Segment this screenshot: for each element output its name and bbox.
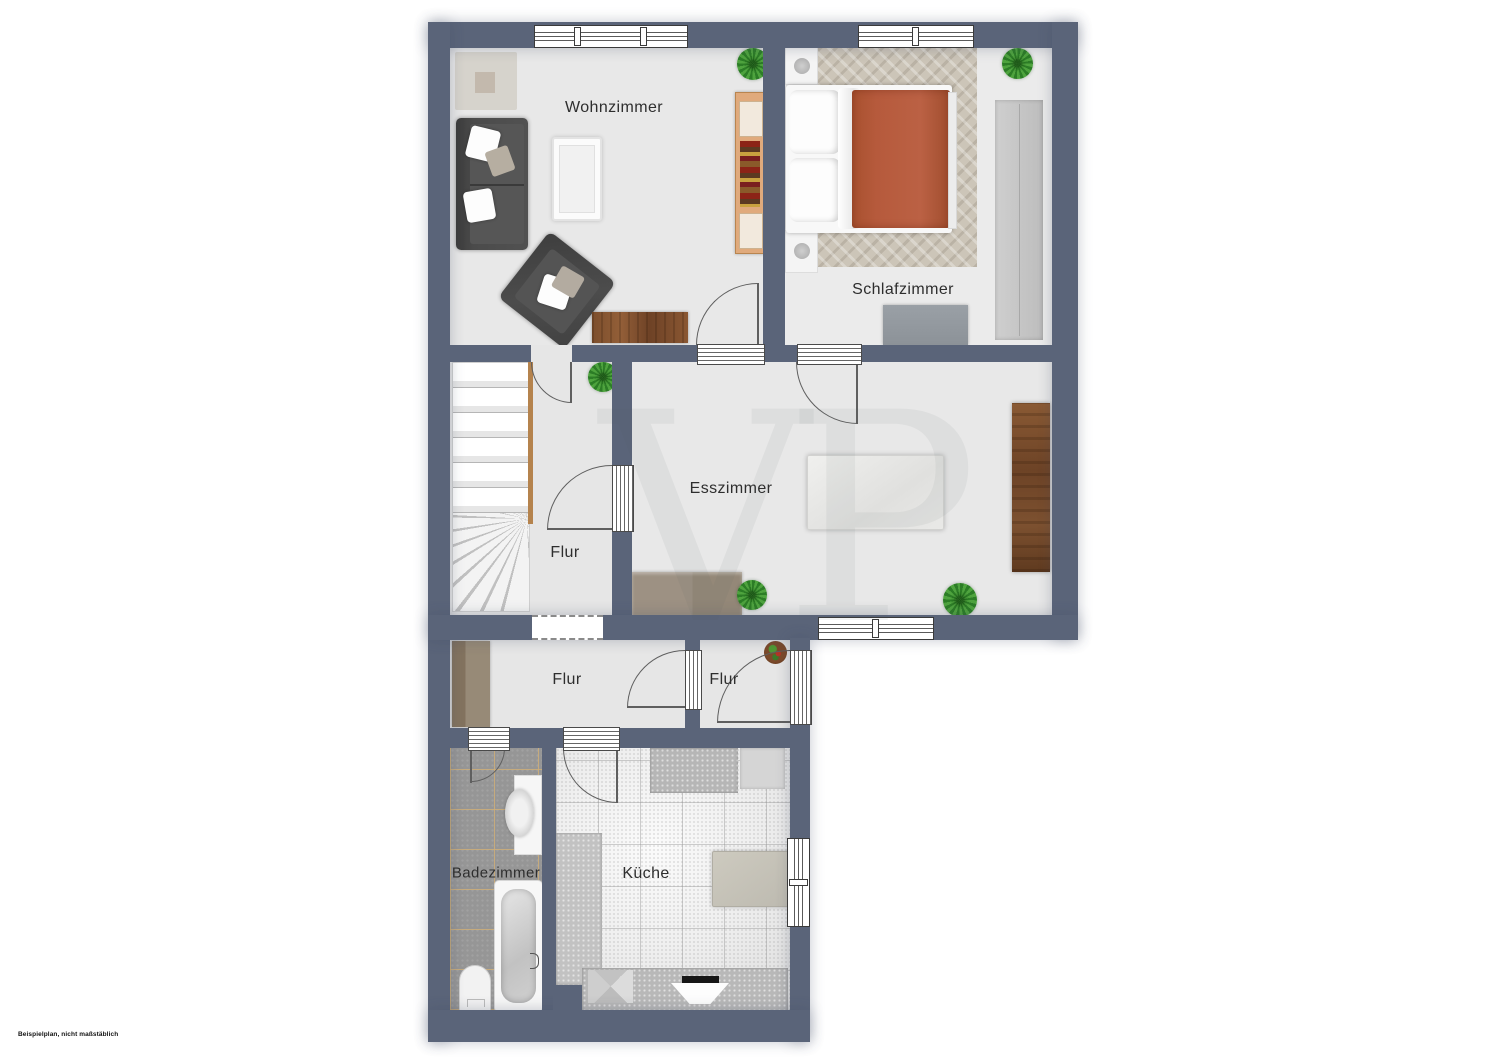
- bathtub-basin: [501, 889, 536, 1003]
- sideboard-books: [740, 141, 760, 207]
- sofa-pillow: [463, 188, 497, 224]
- disclaimer-text: Beispielplan, nicht maßstäblich: [18, 1031, 118, 1038]
- nightstand: [785, 230, 818, 273]
- wall-bottom: [428, 1010, 810, 1042]
- stove: [682, 976, 719, 983]
- door-leaf: [616, 748, 618, 803]
- window-mullion: [640, 27, 647, 46]
- door-sill-wohnzimmer: [697, 344, 765, 365]
- plant-icon: [943, 583, 977, 617]
- plant-icon: [1002, 48, 1033, 79]
- stairs: [452, 362, 530, 612]
- room-label-flur-mitte: Flur: [550, 544, 579, 562]
- door-leaf: [717, 721, 790, 723]
- room-label-badezimmer: Badezimmer: [452, 865, 540, 882]
- window-wohnzimmer: [534, 25, 688, 48]
- toilet-tank: [467, 999, 485, 1007]
- door-leaf: [470, 748, 472, 783]
- door-leaf: [570, 362, 572, 403]
- window-mullion: [912, 27, 919, 46]
- room-label-wohnzimmer: Wohnzimmer: [565, 99, 663, 117]
- door-leaf: [856, 362, 858, 424]
- washbasin: [505, 789, 534, 837]
- room-label-schlafzimmer: Schlafzimmer: [852, 281, 954, 299]
- door-leaf: [627, 706, 685, 708]
- room-label-esszimmer: Esszimmer: [690, 480, 773, 498]
- fridge: [740, 748, 785, 789]
- dresser: [883, 305, 968, 345]
- wall-top: [428, 22, 1078, 48]
- door-sill-schlafzimmer: [797, 344, 862, 365]
- lamp-icon: [794, 58, 810, 74]
- coffee-table: [552, 137, 602, 221]
- door-sill-flur-klein: [685, 650, 702, 710]
- room-label-kueche: Küche: [622, 865, 669, 883]
- faucet-icon: [530, 953, 539, 969]
- bed-blanket: [852, 90, 950, 228]
- floorplan-canvas: VP Wohnzimmer Schlafzimmer Esszimmer Flu…: [0, 0, 1500, 1060]
- kitchen-counter: [556, 833, 602, 985]
- door-sill-flur-esszimmer: [612, 465, 634, 532]
- nightstand: [785, 47, 818, 85]
- wall-kueche-notch: [553, 985, 582, 1012]
- toilet: [459, 965, 491, 1013]
- bed-pillow: [789, 158, 841, 222]
- window-mullion: [789, 879, 808, 886]
- bed-frame-edge: [948, 92, 957, 229]
- lamp-icon: [794, 243, 810, 259]
- sideboard-shelf: [739, 101, 763, 137]
- stairs-treads: [453, 363, 529, 513]
- sideboard-shelf: [739, 213, 763, 249]
- door-sill-kueche: [563, 727, 620, 751]
- door-leaf: [757, 283, 759, 345]
- door-leaf: [547, 528, 612, 530]
- lowboard: [1012, 403, 1050, 572]
- tv-lowboard: [592, 312, 688, 343]
- kitchen-table: [712, 851, 791, 907]
- sideboard: [632, 572, 742, 615]
- wall-esszimmer-sued: [428, 615, 1078, 640]
- passage-flur-oben: [531, 345, 572, 362]
- wall-left: [428, 22, 450, 1042]
- bookcase-sideboard: [735, 92, 765, 254]
- window-mullion: [574, 27, 581, 46]
- stairs-stringer: [528, 362, 533, 524]
- window-mullion: [872, 619, 879, 638]
- room-label-flur-unten: Flur: [552, 671, 581, 689]
- door-sill-bad: [468, 727, 510, 751]
- rug-inner: [475, 72, 495, 93]
- bathtub: [494, 880, 543, 1013]
- sink: [588, 970, 633, 1003]
- wall-bad-kueche: [542, 748, 556, 1013]
- room-label-flur-klein: Flur: [709, 671, 738, 689]
- plant-icon: [737, 580, 767, 610]
- coffee-table-top: [559, 145, 595, 213]
- bed-pillow: [789, 90, 841, 154]
- sofa-seam: [470, 184, 524, 186]
- double-bed: [786, 85, 952, 233]
- wall-right: [1052, 22, 1078, 640]
- wardrobe: [995, 100, 1043, 340]
- entry-door-sill: [790, 650, 812, 725]
- wall-divider-wz-sz: [763, 22, 785, 362]
- wardrobe-door-split: [1019, 104, 1020, 336]
- open-passage-dashed: [532, 615, 603, 640]
- hall-wardrobe: [452, 641, 490, 727]
- dining-table: [807, 455, 944, 530]
- kitchen-counter: [650, 748, 738, 793]
- stairs-winders: [453, 513, 529, 611]
